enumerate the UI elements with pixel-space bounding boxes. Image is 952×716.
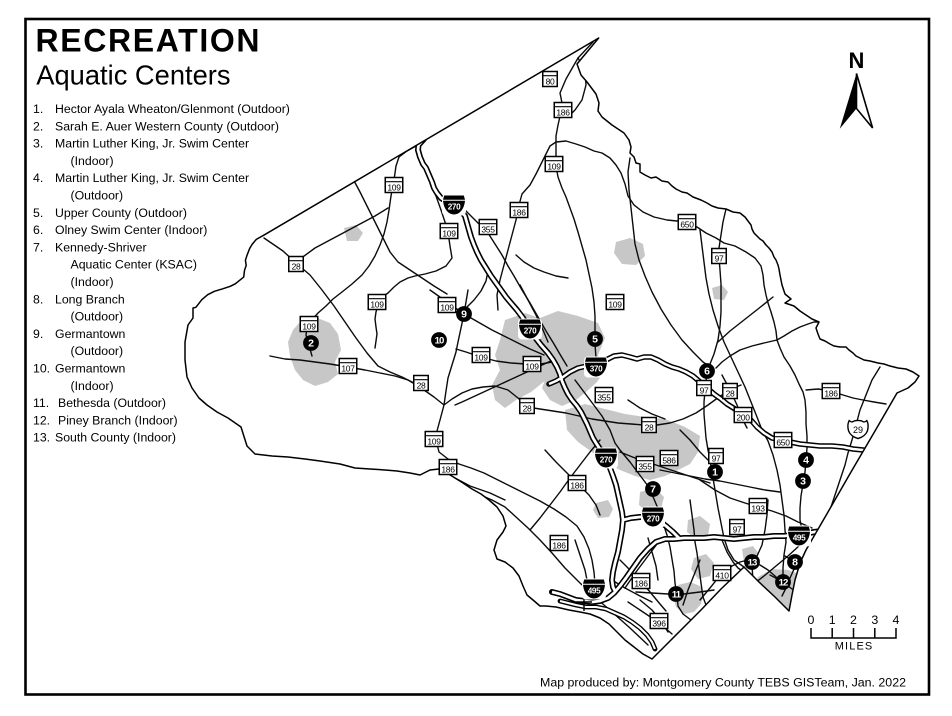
svg-text:9.: 9. bbox=[33, 327, 43, 341]
svg-text:(Indoor): (Indoor) bbox=[71, 275, 114, 289]
svg-text:4: 4 bbox=[803, 455, 809, 467]
svg-text:109: 109 bbox=[474, 352, 488, 362]
svg-text:4.: 4. bbox=[33, 171, 43, 185]
svg-text:28: 28 bbox=[417, 380, 426, 390]
svg-text:586: 586 bbox=[662, 455, 676, 465]
svg-text:(Indoor): (Indoor) bbox=[71, 379, 114, 393]
svg-text:0: 0 bbox=[808, 613, 815, 627]
svg-text:186: 186 bbox=[441, 464, 455, 474]
svg-text:(Indoor): (Indoor) bbox=[71, 154, 114, 168]
svg-text:80: 80 bbox=[546, 76, 555, 86]
svg-text:109: 109 bbox=[608, 299, 622, 309]
svg-text:10.: 10. bbox=[33, 362, 50, 376]
svg-text:Aquatic Center (KSAC): Aquatic Center (KSAC) bbox=[71, 258, 197, 272]
svg-text:Martin Luther King, Jr. Swim C: Martin Luther King, Jr. Swim Center bbox=[55, 137, 249, 151]
svg-text:186: 186 bbox=[824, 388, 838, 398]
svg-text:355: 355 bbox=[638, 461, 652, 471]
svg-text:Germantown: Germantown bbox=[55, 362, 126, 376]
svg-text:5: 5 bbox=[592, 334, 598, 346]
svg-text:Aquatic Centers: Aquatic Centers bbox=[36, 59, 230, 90]
svg-text:2.: 2. bbox=[33, 119, 43, 133]
svg-text:355: 355 bbox=[481, 224, 495, 234]
svg-text:Germantown: Germantown bbox=[55, 327, 126, 341]
svg-text:1: 1 bbox=[829, 613, 836, 627]
svg-text:186: 186 bbox=[570, 480, 584, 490]
svg-text:107: 107 bbox=[341, 363, 355, 373]
svg-text:7.: 7. bbox=[33, 240, 43, 254]
svg-text:11.: 11. bbox=[33, 396, 49, 410]
svg-text:3: 3 bbox=[800, 476, 806, 488]
svg-text:650: 650 bbox=[680, 219, 694, 229]
svg-text:13.: 13. bbox=[33, 431, 50, 445]
svg-text:Hector Ayala Wheaton/Glenmont: Hector Ayala Wheaton/Glenmont (Outdoor) bbox=[55, 102, 290, 116]
svg-text:28: 28 bbox=[726, 388, 735, 398]
svg-text:396: 396 bbox=[652, 618, 666, 628]
svg-text:109: 109 bbox=[302, 321, 316, 331]
svg-text:3.: 3. bbox=[33, 137, 43, 151]
svg-text:4: 4 bbox=[893, 613, 900, 627]
svg-text:5.: 5. bbox=[33, 206, 43, 220]
svg-text:Bethesda (Outdoor): Bethesda (Outdoor) bbox=[58, 396, 166, 410]
svg-text:RECREATION: RECREATION bbox=[36, 23, 260, 59]
svg-text:97: 97 bbox=[712, 453, 721, 463]
svg-text:1: 1 bbox=[712, 467, 718, 479]
svg-text:186: 186 bbox=[552, 540, 566, 550]
svg-text:109: 109 bbox=[370, 299, 384, 309]
svg-text:6: 6 bbox=[704, 366, 710, 378]
svg-text:270: 270 bbox=[448, 203, 461, 212]
svg-text:186: 186 bbox=[556, 107, 570, 117]
svg-text:3: 3 bbox=[871, 613, 878, 627]
svg-text:12: 12 bbox=[779, 578, 788, 589]
svg-text:28: 28 bbox=[645, 422, 654, 432]
svg-text:495: 495 bbox=[793, 534, 806, 543]
svg-text:N: N bbox=[849, 48, 865, 73]
svg-text:1.: 1. bbox=[33, 102, 43, 116]
svg-text:Olney Swim Center (Indoor): Olney Swim Center (Indoor) bbox=[55, 223, 207, 237]
svg-text:Sarah E. Auer Western County (: Sarah E. Auer Western County (Outdoor) bbox=[55, 119, 279, 133]
svg-text:370: 370 bbox=[590, 365, 603, 374]
svg-text:28: 28 bbox=[292, 261, 301, 271]
svg-text:9: 9 bbox=[461, 309, 467, 321]
svg-text:109: 109 bbox=[440, 302, 454, 312]
svg-text:12.: 12. bbox=[33, 413, 50, 427]
svg-text:(Outdoor): (Outdoor) bbox=[71, 344, 124, 358]
svg-text:Kennedy-Shriver: Kennedy-Shriver bbox=[55, 240, 147, 254]
svg-text:6.: 6. bbox=[33, 223, 43, 237]
svg-text:Martin Luther King, Jr. Swim C: Martin Luther King, Jr. Swim Center bbox=[55, 171, 249, 185]
svg-text:109: 109 bbox=[547, 161, 561, 171]
svg-text:2: 2 bbox=[308, 338, 314, 350]
svg-text:Long Branch: Long Branch bbox=[55, 292, 125, 306]
svg-text:109: 109 bbox=[442, 228, 456, 238]
svg-text:13: 13 bbox=[748, 558, 757, 569]
svg-text:7: 7 bbox=[650, 484, 656, 496]
svg-text:355: 355 bbox=[597, 392, 611, 402]
svg-text:Piney Branch (Indoor): Piney Branch (Indoor) bbox=[58, 413, 178, 427]
svg-text:(Outdoor): (Outdoor) bbox=[71, 189, 124, 203]
svg-text:650: 650 bbox=[776, 437, 790, 447]
svg-text:186: 186 bbox=[634, 578, 648, 588]
svg-text:29: 29 bbox=[853, 425, 863, 435]
svg-text:410: 410 bbox=[715, 570, 729, 580]
svg-text:270: 270 bbox=[600, 456, 613, 465]
svg-text:270: 270 bbox=[647, 515, 660, 524]
svg-text:193: 193 bbox=[751, 503, 765, 513]
svg-text:495: 495 bbox=[588, 587, 601, 596]
svg-text:Upper County (Outdoor): Upper County (Outdoor) bbox=[55, 206, 187, 220]
svg-text:270: 270 bbox=[524, 327, 537, 336]
svg-text:MILES: MILES bbox=[835, 641, 873, 653]
svg-text:109: 109 bbox=[525, 361, 539, 371]
svg-text:Map produced by: Montgomery Co: Map produced by: Montgomery County TEBS … bbox=[540, 676, 906, 690]
svg-text:2: 2 bbox=[850, 613, 857, 627]
svg-text:97: 97 bbox=[700, 385, 709, 395]
svg-text:8.: 8. bbox=[33, 292, 43, 306]
svg-text:186: 186 bbox=[512, 207, 526, 217]
svg-text:28: 28 bbox=[523, 403, 532, 413]
svg-text:10: 10 bbox=[435, 336, 444, 347]
svg-text:97: 97 bbox=[733, 524, 742, 534]
svg-text:South County (Indoor): South County (Indoor) bbox=[55, 431, 176, 445]
svg-text:97: 97 bbox=[715, 253, 724, 263]
svg-text:109: 109 bbox=[427, 436, 441, 446]
svg-text:200: 200 bbox=[736, 412, 750, 422]
svg-text:8: 8 bbox=[792, 557, 798, 569]
svg-text:109: 109 bbox=[387, 182, 401, 192]
svg-text:(Outdoor): (Outdoor) bbox=[71, 310, 124, 324]
